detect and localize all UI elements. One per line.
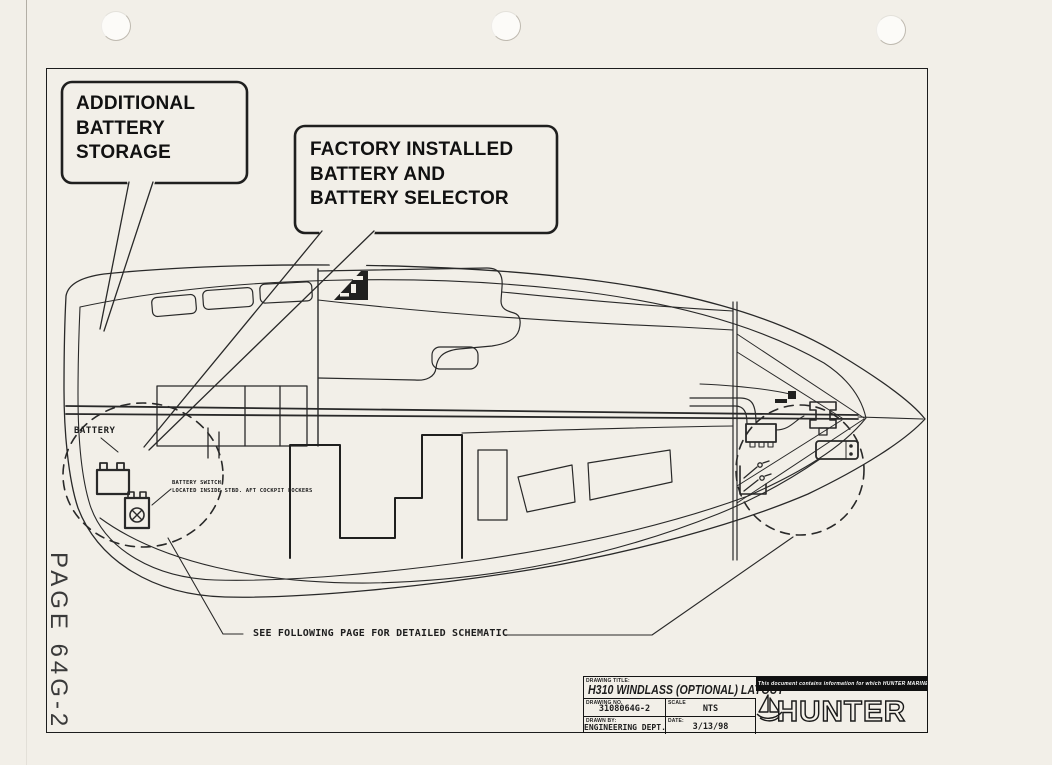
drawing-title: H310 WINDLASS (OPTIONAL) LAYOUT — [588, 683, 784, 697]
bow-structure — [700, 302, 864, 560]
see-following-page-note: SEE FOLLOWING PAGE FOR DETAILED SCHEMATI… — [253, 628, 508, 639]
sailboat-icon — [756, 691, 783, 723]
brand-cell: This document contains information for w… — [756, 677, 927, 732]
proprietary-notice: This document contains information for w… — [756, 677, 927, 691]
interior-furniture — [290, 435, 672, 558]
callout-factory-installed: FACTORY INSTALLED BATTERY AND BATTERY SE… — [310, 138, 554, 212]
page-number-label: PAGE 64G-2 — [44, 552, 72, 730]
scanned-drawing-page: { "page": { "label": "PAGE 64G-2", "pape… — [0, 0, 1052, 765]
companionway-hatch — [334, 271, 368, 300]
brand-wordmark: HUNTER — [777, 696, 906, 729]
detail-circle-battery — [63, 403, 223, 547]
drawing-number-cell: DRAWING NO. 3108064G-2 — [584, 699, 666, 717]
centerline — [66, 406, 923, 419]
date-value: 3/13/98 — [666, 722, 755, 732]
drawing-number: 3108064G-2 — [584, 704, 665, 714]
cockpit-hatches — [151, 282, 312, 317]
battery-symbol — [97, 463, 129, 494]
cabin-structure — [318, 268, 733, 446]
battery-label: BATTERY — [74, 426, 115, 436]
scale-value: NTS — [666, 704, 755, 714]
drawn-by-value: ENGINEERING DEPT. — [584, 723, 665, 732]
title-block: DRAWING TITLE: H310 WINDLASS (OPTIONAL) … — [583, 676, 928, 733]
date-cell: DATE: 3/13/98 — [666, 717, 756, 734]
callout-additional-battery-storage: ADDITIONAL BATTERY STORAGE — [76, 92, 244, 166]
drawn-by-cell: DRAWN BY: ENGINEERING DEPT. — [584, 717, 666, 734]
leader-lines — [101, 438, 793, 635]
battery-switch-note: BATTERY SWITCH LOCATED INSIDE STBD. AFT … — [172, 480, 312, 496]
stern-lockers — [157, 386, 307, 458]
drawing-title-cell: DRAWING TITLE: H310 WINDLASS (OPTIONAL) … — [584, 677, 756, 699]
windlass-switch-symbol — [740, 461, 771, 494]
connector-block-symbol — [746, 424, 776, 447]
hull-outline — [64, 265, 925, 597]
scale-cell: SCALE NTS — [666, 699, 756, 717]
hunter-logo: HUNTER — [756, 691, 927, 734]
battery-selector-switch-symbol — [125, 492, 149, 528]
